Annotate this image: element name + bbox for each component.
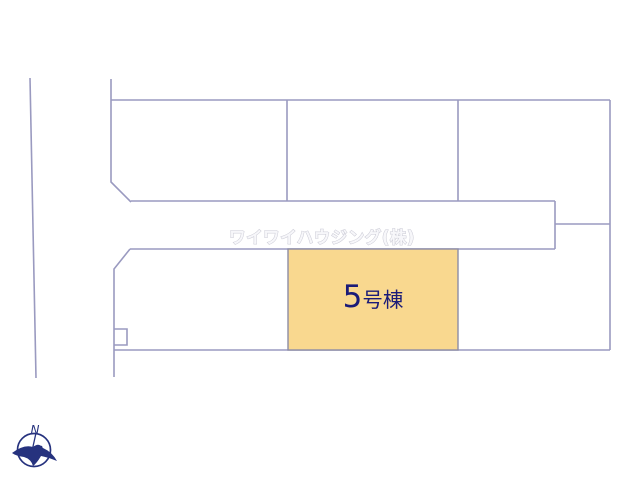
plot-d-left-edge <box>114 249 130 377</box>
watermark: ワイワイハウジング(株) <box>229 227 415 247</box>
road-left-line <box>30 78 36 378</box>
site-plan-canvas: 5号棟 ワイワイハウジング(株) N <box>0 0 640 480</box>
plot-5-label-suffix: 号棟 <box>362 288 403 312</box>
plot-a-left-edge <box>111 79 131 202</box>
site-plan-drawing: 5号棟 ワイワイハウジング(株) N <box>0 0 640 480</box>
plot-d-step-box <box>114 329 127 345</box>
compass-north-label: N <box>31 423 40 437</box>
plot-5-label-number: 5 <box>343 279 363 315</box>
compass-icon: N <box>12 423 57 467</box>
